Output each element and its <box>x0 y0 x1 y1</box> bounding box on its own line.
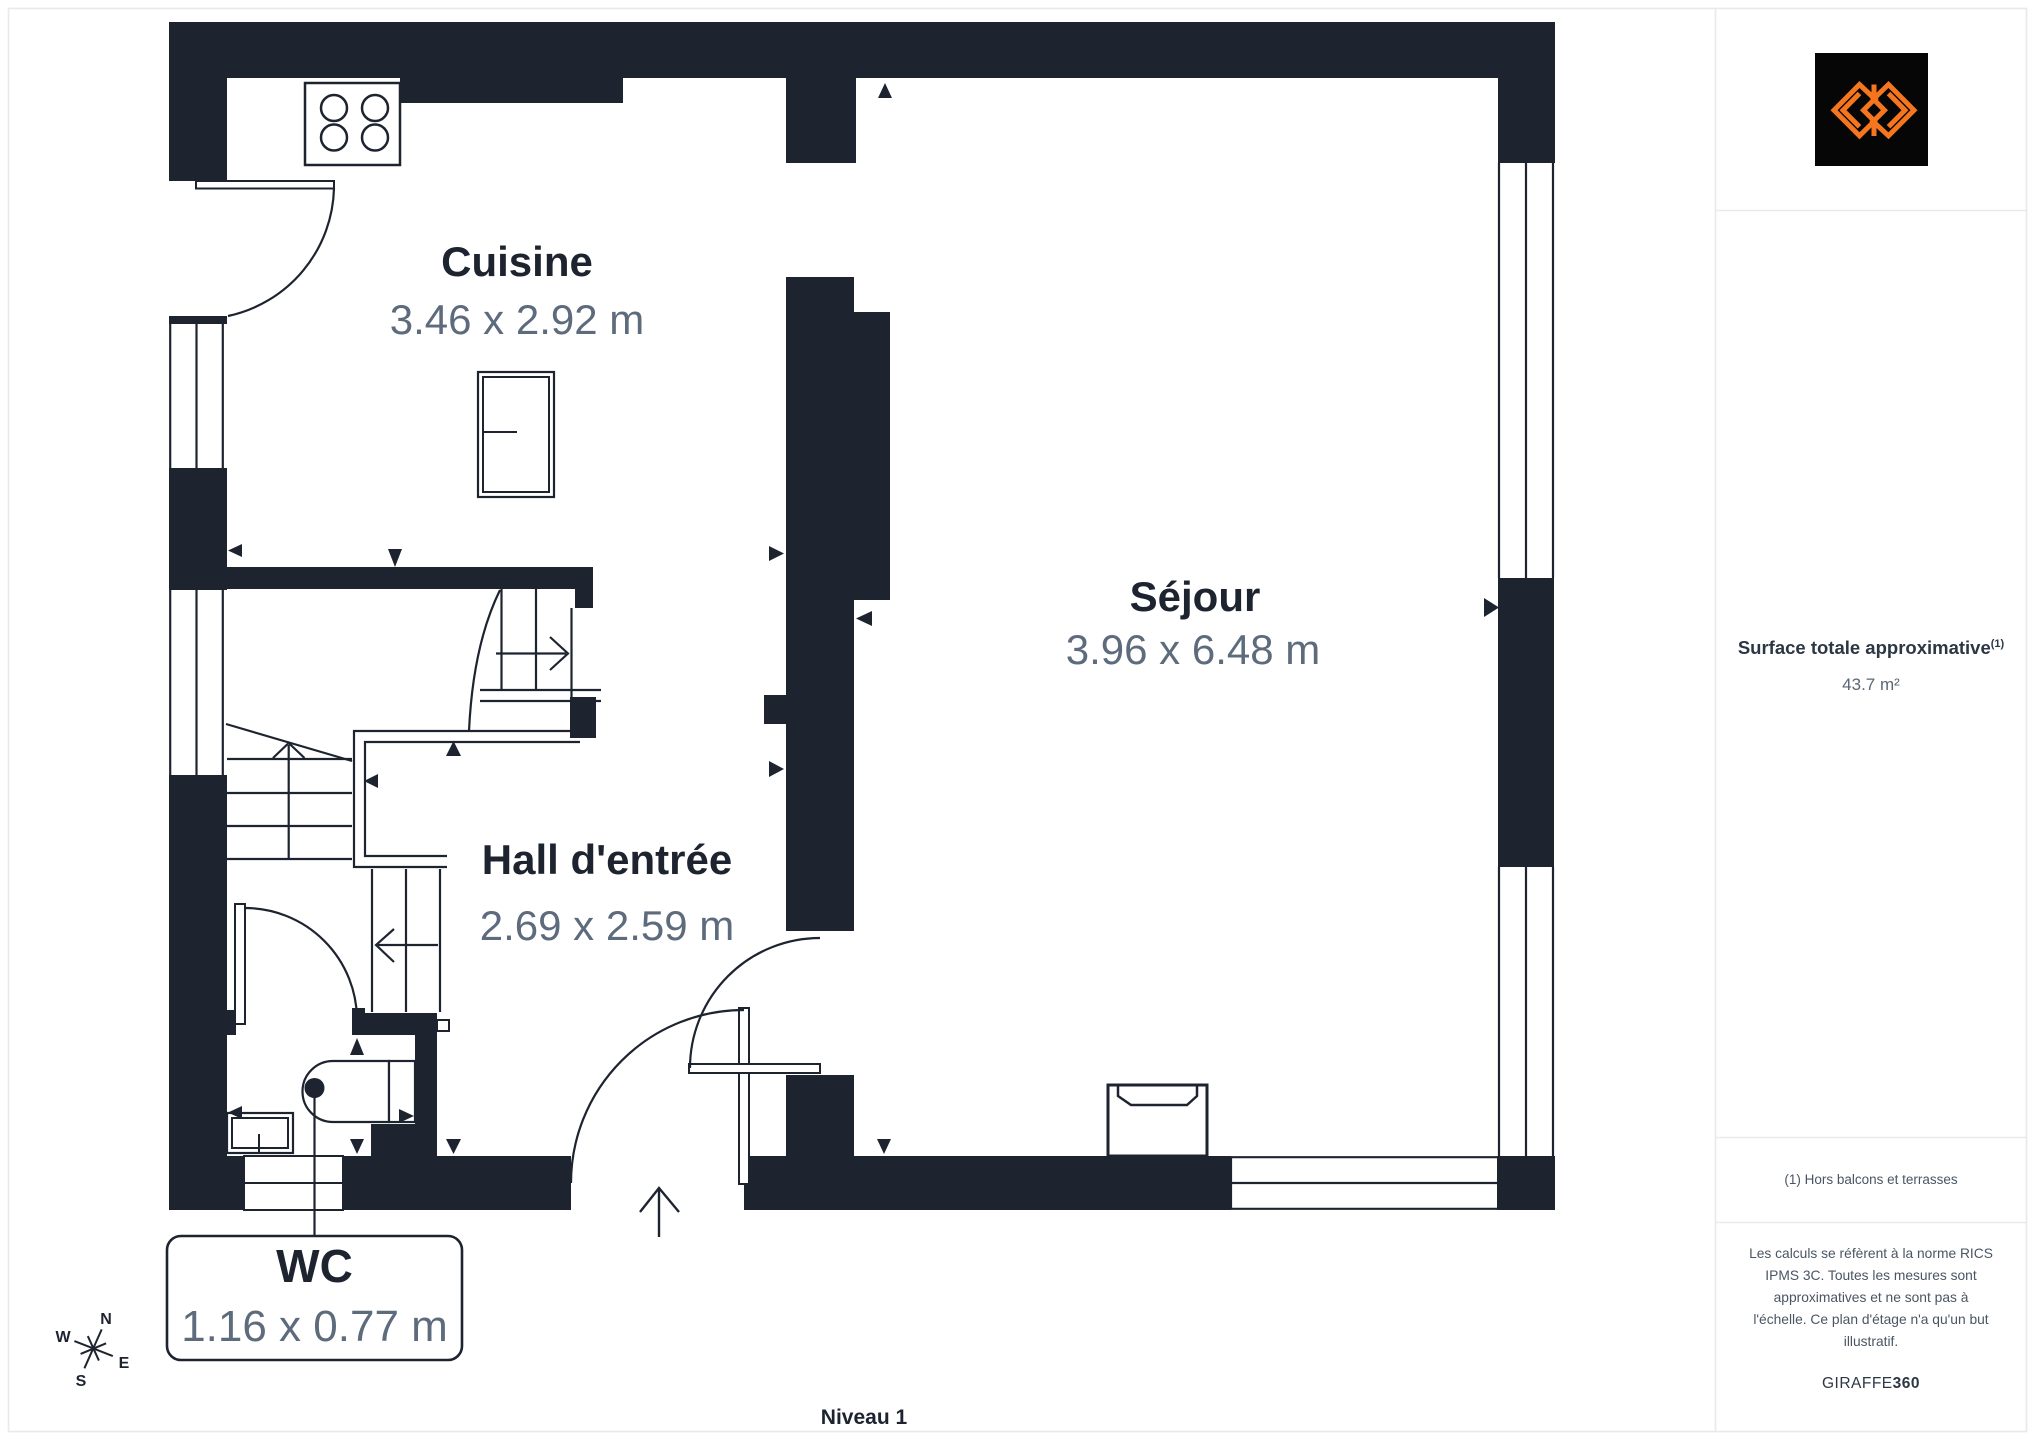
svg-text:(1) Hors balcons et terrasses: (1) Hors balcons et terrasses <box>1784 1172 1958 1187</box>
svg-text:Les calculs se réfèrent à la n: Les calculs se réfèrent à la norme RICS <box>1749 1246 1993 1261</box>
svg-text:Cuisine: Cuisine <box>441 238 593 285</box>
svg-text:WC: WC <box>276 1240 353 1292</box>
svg-text:GIRAFFE360: GIRAFFE360 <box>1822 1375 1920 1392</box>
svg-text:3.46 x 2.92 m: 3.46 x 2.92 m <box>390 296 644 343</box>
svg-text:Séjour: Séjour <box>1130 573 1261 620</box>
svg-text:illustratif.: illustratif. <box>1844 1334 1898 1349</box>
svg-text:Niveau 1: Niveau 1 <box>821 1406 908 1429</box>
svg-text:Hall d'entrée: Hall d'entrée <box>482 836 732 883</box>
svg-text:N: N <box>100 1311 112 1328</box>
svg-text:Surface totale approximative(1: Surface totale approximative(1) <box>1738 637 2005 658</box>
svg-text:43.7 m²: 43.7 m² <box>1842 675 1900 694</box>
svg-text:W: W <box>55 1329 71 1346</box>
svg-text:l'échelle. Ce plan d'étage n'a: l'échelle. Ce plan d'étage n'a qu'un but <box>1753 1312 1988 1327</box>
svg-text:S: S <box>76 1373 87 1390</box>
svg-text:3.96 x 6.48 m: 3.96 x 6.48 m <box>1066 626 1320 673</box>
svg-text:2.69 x 2.59 m: 2.69 x 2.59 m <box>480 902 734 949</box>
svg-text:IPMS 3C. Toutes les mesures so: IPMS 3C. Toutes les mesures sont <box>1765 1268 1977 1283</box>
svg-text:approximatives et ne sont pas: approximatives et ne sont pas à <box>1774 1290 1969 1305</box>
svg-text:1.16 x 0.77 m: 1.16 x 0.77 m <box>181 1302 448 1351</box>
svg-text:E: E <box>119 1355 130 1372</box>
